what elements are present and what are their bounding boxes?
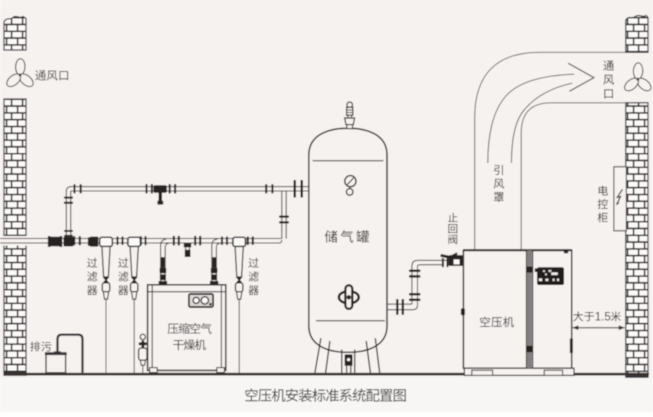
svg-text:1.5: 1.5 <box>595 311 611 323</box>
